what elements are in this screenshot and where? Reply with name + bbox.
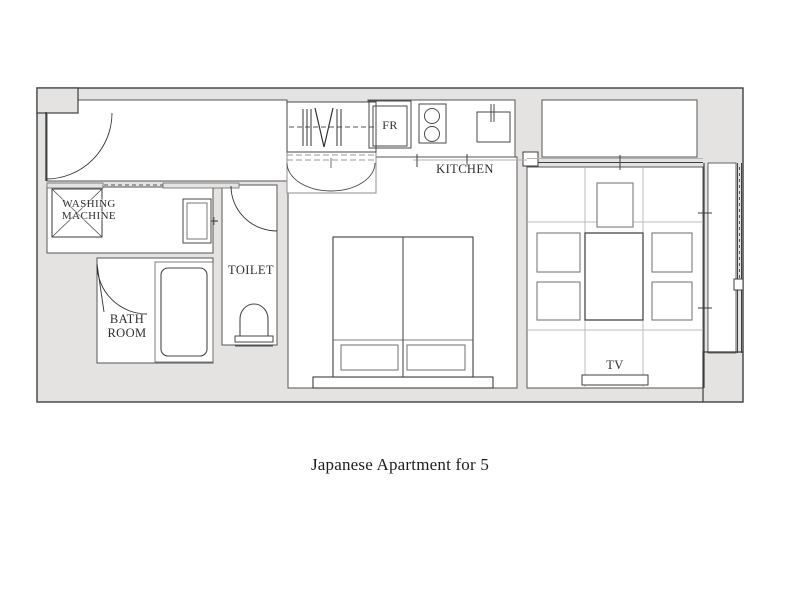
floor-plan-drawing	[0, 0, 800, 600]
window-handle	[734, 279, 743, 290]
entry-wall-block	[37, 88, 78, 113]
tv-label: TV	[598, 358, 632, 372]
floor-cushion	[537, 282, 580, 320]
pillow	[341, 345, 398, 370]
wall-segment	[47, 183, 103, 188]
bed-platform	[313, 377, 493, 388]
double-bed	[313, 237, 493, 388]
floor-table	[585, 233, 643, 320]
washing-machine-label: WASHING MACHINE	[46, 198, 132, 223]
tv-stand	[582, 375, 648, 385]
balcony-floor	[708, 163, 736, 353]
plan-caption: Japanese Apartment for 5	[0, 455, 800, 474]
kitchen-label: KITCHEN	[428, 162, 502, 176]
entry-hall-floor	[47, 100, 287, 181]
wall-segment	[163, 183, 239, 188]
fridge-label: FR	[374, 119, 406, 132]
storage-closet	[542, 100, 697, 157]
toilet-label: TOILET	[221, 263, 281, 277]
floor-plan-page: WASHING MACHINE TOILET BATH ROOM KITCHEN…	[0, 0, 800, 600]
floor-cushion	[597, 183, 633, 227]
pillow	[407, 345, 465, 370]
floor-cushion	[652, 233, 692, 272]
bath-room-label: BATH ROOM	[94, 312, 160, 340]
floor-cushion	[537, 233, 580, 272]
floor-cushion	[652, 282, 692, 320]
